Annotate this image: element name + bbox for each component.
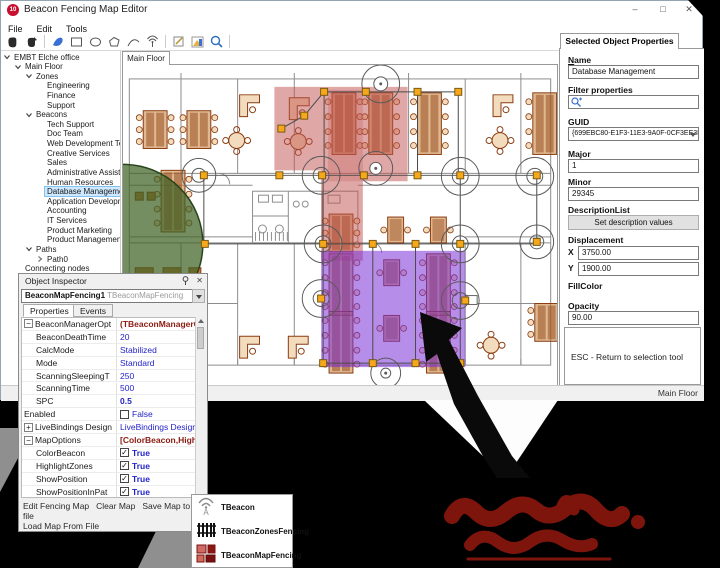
chart-icon[interactable]: [189, 34, 206, 49]
property-name: ShowPosition: [36, 473, 88, 485]
oi-row-beacondeathtime[interactable]: BeaconDeathTime20: [22, 331, 196, 344]
opacity-label: Opacity: [568, 301, 599, 311]
property-value: Standard: [120, 357, 155, 369]
oi-row-showposition[interactable]: ShowPosition✓True: [22, 473, 196, 486]
chevron-down-icon[interactable]: [3, 53, 12, 61]
tree-item-main-floor[interactable]: Main Floor: [14, 62, 65, 72]
edit-map-icon[interactable]: [170, 34, 187, 49]
y-label: Y: [568, 263, 574, 273]
property-name: Mode: [36, 357, 57, 369]
checkbox-unchecked-icon[interactable]: [120, 410, 129, 419]
tree-item-label: IT Services: [45, 216, 89, 225]
major-label: Major: [568, 149, 591, 159]
tree-item-human-resources[interactable]: Human Resources: [36, 177, 115, 187]
tree-item-label: Administrative Assistant: [45, 168, 121, 177]
title-bar: 10 Beacon Fencing Map Editor – □ ✕: [1, 1, 702, 19]
tree-item-label: Human Resources: [45, 178, 115, 187]
property-name: MapOptions: [35, 434, 81, 446]
oi-row-mode[interactable]: ModeStandard: [22, 357, 196, 370]
palette-item-tbeaconmapfencing[interactable]: TBeaconMapFencing: [192, 543, 292, 567]
palette-item-label: TBeacon: [221, 503, 255, 512]
toolbar-separator: [165, 35, 166, 48]
guid-value: {699EBC80-E1F3-11E3-9A0F-0CF3EE3BC(: [572, 130, 699, 137]
tree-item-embt-elche-office[interactable]: EMBT Elche office: [3, 52, 82, 62]
property-name: ScanningSleepingT: [36, 370, 110, 382]
tree-item-finance[interactable]: Finance: [36, 90, 77, 100]
tree-item-product-marketing[interactable]: Product Marketing: [36, 225, 114, 235]
scrollbar-thumb[interactable]: [197, 327, 204, 349]
oi-row-enabled[interactable]: EnabledFalse: [22, 408, 196, 421]
property-value: 250: [120, 370, 134, 382]
polygon-tool-icon[interactable]: [106, 34, 123, 49]
tree-item-engineering[interactable]: Engineering: [36, 81, 92, 91]
property-grid: −BeaconManagerOpt(TBeaconManagerOptions)…: [21, 317, 197, 498]
tree-item-zones[interactable]: Zones: [25, 71, 60, 81]
oi-row-highlightzones[interactable]: HighlightZones✓True: [22, 460, 196, 473]
toolbar: [1, 33, 559, 51]
opacity-input[interactable]: 90.00: [568, 311, 699, 325]
tree-item-it-services[interactable]: IT Services: [36, 216, 89, 226]
oi-row-beaconmanageropt[interactable]: −BeaconManagerOpt(TBeaconManagerOptions): [22, 318, 196, 331]
property-name: BeaconDeathTime: [36, 331, 106, 343]
property-value: True: [132, 473, 150, 485]
tab-properties[interactable]: Properties: [23, 304, 76, 317]
property-value-cell[interactable]: ✓True: [117, 447, 196, 459]
toolbar-separator: [44, 35, 45, 48]
menu-bar: FileEditTools: [1, 19, 559, 33]
link-edit-fencing-map[interactable]: Edit Fencing Map: [23, 501, 89, 511]
property-name: BeaconManagerOpt: [35, 318, 111, 330]
beacon-tool-icon[interactable]: [144, 34, 161, 49]
svg-text:A: A: [203, 508, 209, 516]
collapse-icon[interactable]: −: [24, 436, 33, 445]
checkbox-checked-icon[interactable]: ✓: [120, 461, 129, 470]
name-label: Name: [568, 55, 591, 65]
tree-item-label: Database Management: [45, 187, 121, 196]
search-plus-icon: [571, 97, 582, 108]
window-title: Beacon Fencing Map Editor: [24, 4, 147, 15]
property-value: Stabilized: [120, 344, 157, 356]
zone-red-overlap: [328, 90, 363, 181]
property-value-cell[interactable]: False: [117, 408, 196, 420]
tree-item-label: Zones: [34, 72, 60, 81]
property-value: 0.5: [120, 395, 132, 407]
property-value: 20: [120, 331, 129, 343]
name-input[interactable]: Database Management: [568, 65, 699, 79]
close-icon[interactable]: ✕: [196, 276, 203, 285]
tree-item-label: Sales: [45, 158, 69, 167]
component-selector-dropdown[interactable]: [192, 289, 205, 303]
tree-item-label: Paths: [34, 245, 58, 254]
displacement-label: Displacement: [568, 235, 623, 245]
chevron-down-icon[interactable]: [25, 72, 34, 80]
rectangle-tool-icon[interactable]: [68, 34, 85, 49]
chevron-down-icon[interactable]: [14, 63, 23, 71]
property-value: True: [132, 447, 150, 459]
app-icon: 10: [7, 4, 19, 16]
set-description-values-button[interactable]: Set description values: [568, 215, 699, 230]
tree-item-database-management[interactable]: Database Management: [36, 187, 121, 197]
tree-item-label: Tech Support: [45, 120, 96, 129]
guid-select[interactable]: {699EBC80-E1F3-11E3-9A0F-0CF3EE3BC(: [568, 127, 699, 141]
tree-item-label: Engineering: [45, 81, 92, 90]
selected-object-properties-panel: Name Database Management Filter properti…: [559, 48, 704, 386]
property-value-cell[interactable]: 250: [117, 370, 196, 382]
scroll-up-icon[interactable]: [198, 319, 204, 323]
checkbox-checked-icon[interactable]: ✓: [120, 487, 129, 496]
pan-tool-icon[interactable]: [23, 34, 40, 49]
tree-item-label: Product Marketing: [45, 226, 114, 235]
tab-selected-object-properties[interactable]: Selected Object Properties: [560, 33, 679, 49]
oi-row-colorbeacon[interactable]: ColorBeacon✓True: [22, 447, 196, 460]
property-value: True: [132, 486, 150, 498]
object-inspector-title: Object Inspector: [19, 274, 207, 289]
oi-row-showpositioninpat[interactable]: ShowPositionInPat✓True: [22, 486, 196, 498]
property-name: ColorBeacon: [36, 447, 85, 459]
fillcolor-label: FillColor: [568, 281, 602, 291]
tree-item-label: Main Floor: [23, 62, 65, 71]
status-floor-label: Main Floor: [658, 388, 698, 398]
property-name: SPC: [36, 395, 53, 407]
checkbox-checked-icon[interactable]: ✓: [120, 448, 129, 457]
property-value-cell[interactable]: 500: [117, 383, 196, 395]
tree-item-label: Support: [45, 101, 77, 110]
beacon-signal-icon: A: [195, 494, 217, 521]
minor-input[interactable]: 29345: [568, 187, 699, 201]
tree-item-label: Finance: [45, 91, 77, 100]
oi-row-livebindings-design[interactable]: +LiveBindings DesignLiveBindings Designe…: [22, 421, 196, 434]
stage: 10 Beacon Fencing Map Editor – □ ✕ FileE…: [0, 0, 720, 568]
white-wedge: [424, 400, 558, 478]
component-selector[interactable]: BeaconMapFencing1 TBeaconMapFencing: [21, 289, 205, 303]
oi-row-scanningtime[interactable]: ScanningTime500: [22, 383, 196, 396]
tree-item-path0[interactable]: Path0: [36, 254, 70, 264]
tree-item-beacons[interactable]: Beacons: [25, 110, 69, 120]
expand-icon[interactable]: +: [24, 423, 33, 432]
x-label: X: [568, 247, 574, 257]
tab-main-floor[interactable]: Main Floor: [122, 51, 170, 65]
tree-item-label: EMBT Elche office: [12, 53, 82, 62]
tree-item-paths[interactable]: Paths: [25, 244, 58, 254]
palette-item-label: TBeaconZonesFencing: [221, 527, 309, 536]
zoom-tool-icon[interactable]: [208, 34, 225, 49]
oi-row-mapoptions[interactable]: −MapOptions[ColorBeacon,HighlightZone: [22, 434, 196, 447]
chevron-down-icon: [690, 133, 696, 137]
fence-icon: [195, 518, 217, 545]
tree-item-label: Doc Team: [45, 129, 85, 138]
tree-item-label: Beacons: [34, 110, 69, 119]
descriptionlist-label: DescriptionList: [568, 205, 630, 215]
property-value-cell[interactable]: 20: [117, 331, 196, 343]
toolbar-separator: [229, 35, 230, 48]
tree-item-label: Creative Services: [45, 149, 112, 158]
component-name: BeaconMapFencing1: [25, 291, 105, 300]
property-value: 500: [120, 383, 134, 395]
scrollbar[interactable]: [195, 317, 205, 498]
tree-item-application-development[interactable]: Application Development: [36, 196, 121, 206]
property-value-cell[interactable]: Stabilized: [117, 344, 196, 356]
ellipse-tool-icon[interactable]: [87, 34, 104, 49]
tree-item-creative-services[interactable]: Creative Services: [36, 148, 112, 158]
tree-item-label: Application Development: [45, 197, 121, 206]
property-name: CalcMode: [36, 344, 74, 356]
chevron-down-icon[interactable]: [25, 245, 34, 253]
oi-row-calcmode[interactable]: CalcModeStabilized: [22, 344, 196, 357]
guid-label: GUID: [568, 117, 589, 127]
property-value-cell[interactable]: [ColorBeacon,HighlightZone: [117, 434, 196, 446]
property-name: Enabled: [24, 408, 55, 420]
select-tool-icon[interactable]: [4, 34, 21, 49]
tree-item-accounting[interactable]: Accounting: [36, 206, 89, 216]
tree-item-label: Web Development Team: [45, 139, 121, 148]
close-button[interactable]: ✕: [678, 2, 700, 17]
property-value-cell[interactable]: LiveBindings Designer: [117, 421, 196, 433]
property-name: ScanningTime: [36, 383, 90, 395]
tree-item-label: Product Management: [45, 235, 121, 244]
property-value: False: [132, 408, 153, 420]
tree-item-administrative-assistant[interactable]: Administrative Assistant: [36, 167, 121, 177]
component-palette: ATBeaconTBeaconZonesFencingTBeaconMapFen…: [191, 494, 293, 568]
property-value-cell[interactable]: ✓True: [117, 460, 196, 472]
tree-item-sales[interactable]: Sales: [36, 158, 69, 168]
tree-item-label: Connecting nodes: [23, 264, 92, 273]
filter-properties-label: Filter properties: [568, 85, 633, 95]
property-value: (TBeaconManagerOptions): [120, 318, 196, 330]
link-clear-map[interactable]: Clear Map: [96, 501, 135, 511]
x-input[interactable]: 3750.00: [578, 246, 699, 260]
object-inspector-window: Object Inspector ✕ BeaconMapFencing1 TBe…: [18, 273, 208, 532]
property-name: LiveBindings Design: [35, 421, 112, 433]
tab-events[interactable]: Events: [73, 304, 113, 317]
tree-item-label: Accounting: [45, 206, 89, 215]
palette-item-tbeacon[interactable]: ATBeacon: [192, 495, 292, 519]
map-zones-icon: [195, 542, 217, 568]
property-name: ShowPositionInPat: [36, 486, 107, 498]
y-input[interactable]: 1900.00: [578, 262, 699, 276]
property-value-cell[interactable]: ✓True: [117, 473, 196, 485]
minor-label: Minor: [568, 177, 591, 187]
tree-item-support[interactable]: Support: [36, 100, 77, 110]
property-value-cell[interactable]: (TBeaconManagerOptions): [117, 318, 196, 330]
handwritten-annotation: [452, 500, 645, 559]
property-value-cell[interactable]: ✓True: [117, 486, 196, 498]
oi-row-spc[interactable]: SPC0.5: [22, 395, 196, 408]
tree-item-doc-team[interactable]: Doc Team: [36, 129, 85, 139]
minimize-button[interactable]: –: [624, 2, 646, 17]
inspector-quick-links: Edit Fencing MapClear MapSave Map to fil…: [23, 501, 203, 531]
chevron-down-icon[interactable]: [25, 111, 34, 119]
link-load-map-from-file[interactable]: Load Map From File: [23, 521, 99, 531]
palette-item-label: TBeaconMapFencing: [221, 551, 301, 560]
tree-item-label: Path0: [45, 255, 70, 264]
filter-input[interactable]: [568, 95, 699, 109]
hint-text: ESC - Return to selection tool: [571, 352, 683, 362]
brush-tool-icon[interactable]: [49, 34, 66, 49]
collapse-icon[interactable]: −: [24, 319, 33, 328]
property-value-cell[interactable]: Standard: [117, 357, 196, 369]
checkbox-checked-icon[interactable]: ✓: [120, 474, 129, 483]
property-value-cell[interactable]: 0.5: [117, 395, 196, 407]
pin-icon[interactable]: [181, 276, 190, 285]
component-type: TBeaconMapFencing: [107, 291, 183, 300]
palette-item-tbeaconzonesfencing[interactable]: TBeaconZonesFencing: [192, 519, 292, 543]
tree-item-product-management[interactable]: Product Management: [36, 235, 121, 245]
tree-item-tech-support[interactable]: Tech Support: [36, 119, 96, 129]
oi-row-scanningsleepingt[interactable]: ScanningSleepingT250: [22, 370, 196, 383]
property-name: HighlightZones: [36, 460, 93, 472]
hint-box: ESC - Return to selection tool: [564, 327, 701, 385]
chevron-right-icon[interactable]: [36, 255, 45, 263]
curve-tool-icon[interactable]: [125, 34, 142, 49]
tree-item-web-development-team[interactable]: Web Development Team: [36, 139, 121, 149]
maximize-button[interactable]: □: [652, 2, 674, 17]
property-value: LiveBindings Designer: [120, 421, 196, 433]
property-value: [ColorBeacon,HighlightZone: [120, 434, 196, 446]
major-input[interactable]: 1: [568, 159, 699, 173]
property-value: True: [132, 460, 150, 472]
